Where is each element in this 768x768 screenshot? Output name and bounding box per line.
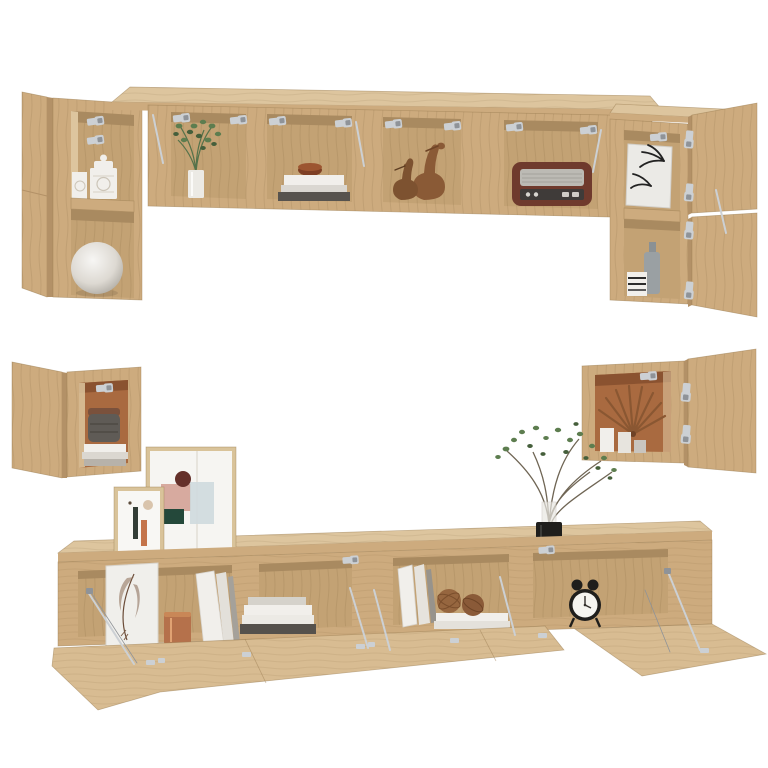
compartment [79, 380, 128, 468]
white-binders [196, 571, 240, 647]
compartment-bird-figurines [383, 117, 461, 205]
vintage-radio [512, 162, 592, 206]
compartment [595, 371, 671, 453]
palm-leaf-print [626, 144, 672, 208]
open-door-upper [688, 103, 757, 215]
product-photo-stage [0, 0, 768, 768]
open-door-lower [688, 213, 757, 317]
mid-left-wall-cube-cabinet [12, 362, 141, 478]
striped-box [627, 272, 647, 296]
top-left-wall-cabinet [22, 92, 142, 300]
upper-compartment [71, 111, 134, 201]
open-door-left [12, 362, 67, 478]
open-door-left [22, 92, 53, 297]
tv-bench [52, 422, 766, 710]
upper-compartment [624, 130, 680, 211]
compartment-radio [504, 120, 601, 209]
lower-compartment [624, 219, 680, 299]
bench-compartment-3 [393, 554, 510, 629]
abstract-art-frame-small [114, 487, 164, 560]
magazine-stack [82, 444, 128, 466]
mid-right-wall-cube-cabinet [582, 349, 756, 473]
top-long-wall-cabinet [112, 87, 662, 218]
furniture-product-photo [0, 0, 768, 768]
copper-pot [164, 612, 191, 645]
white-sphere-vase [71, 242, 123, 294]
lower-compartment [71, 209, 134, 298]
open-door-right [684, 349, 756, 473]
feather-print-panel [106, 563, 158, 647]
compartment-books [267, 114, 364, 202]
woven-basket [88, 408, 120, 442]
horizontal-book-stack [240, 597, 316, 634]
top-right-wall-cabinet [610, 103, 757, 317]
